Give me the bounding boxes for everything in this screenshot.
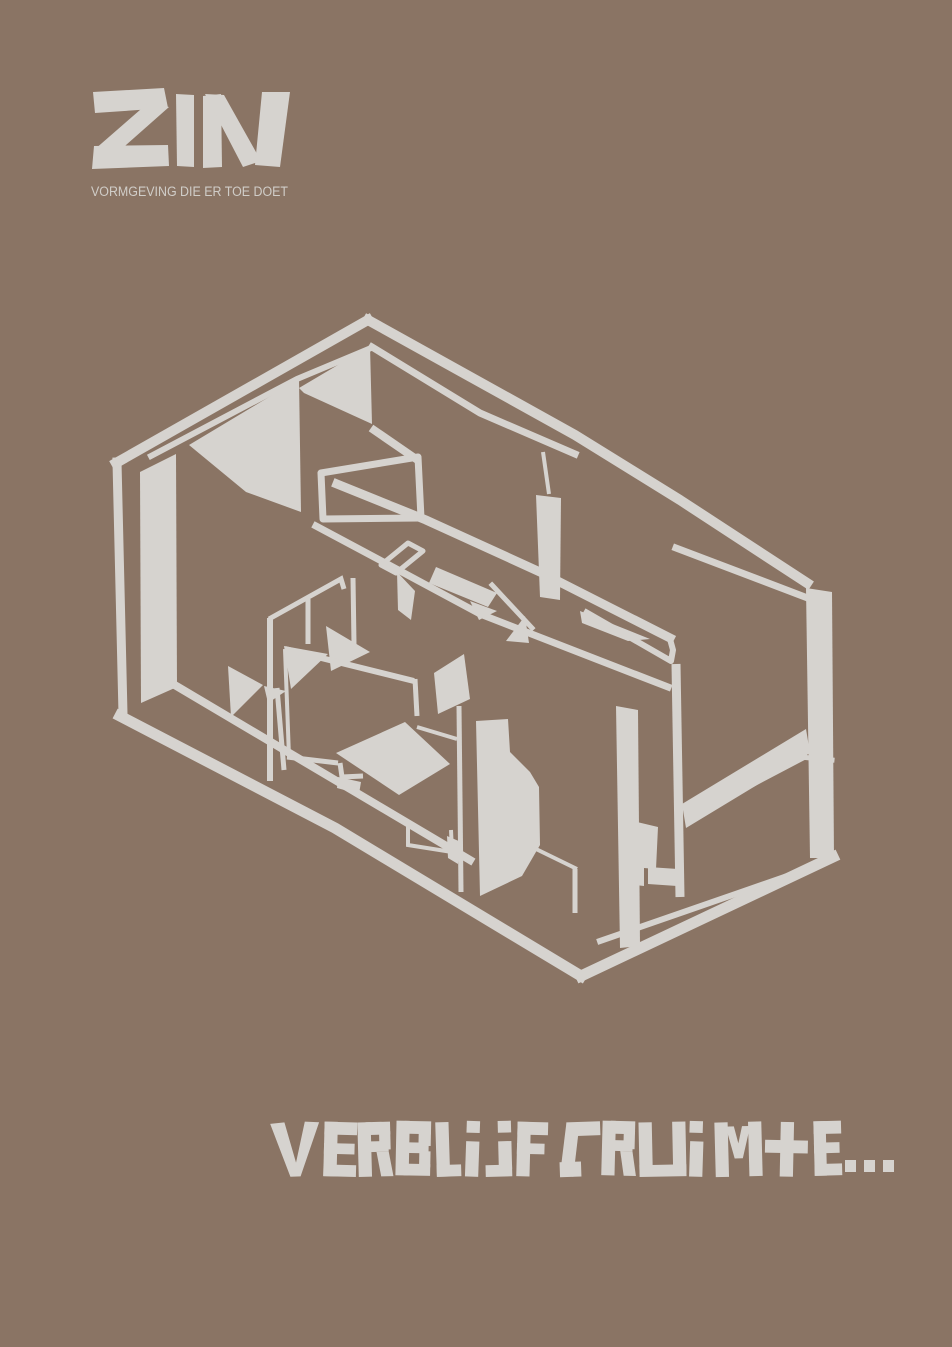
svg-text:VORMGEVING DIE ER TOE DOET: VORMGEVING DIE ER TOE DOET <box>91 184 288 200</box>
